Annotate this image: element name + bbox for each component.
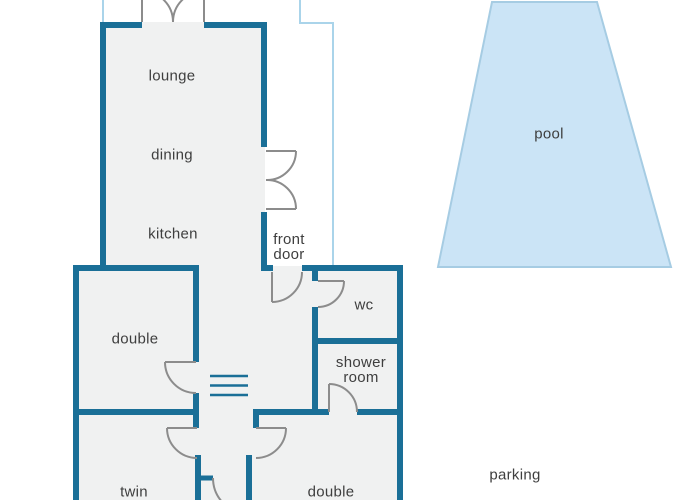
terrace-french-doors (266, 151, 296, 209)
door-arc (142, 0, 173, 22)
boundary-line-right (300, 0, 333, 266)
extension-floor (73, 266, 403, 500)
floor-plan-canvas: loungediningkitchenfrontdoorwcshowerroom… (0, 0, 700, 500)
floor-plan-drawing (0, 0, 700, 500)
door-arc (173, 0, 204, 22)
main-house-floor (100, 22, 265, 272)
door-arc (266, 151, 296, 180)
pool-area (438, 2, 671, 267)
door-arc (266, 180, 296, 209)
top-french-doors (142, 0, 204, 22)
